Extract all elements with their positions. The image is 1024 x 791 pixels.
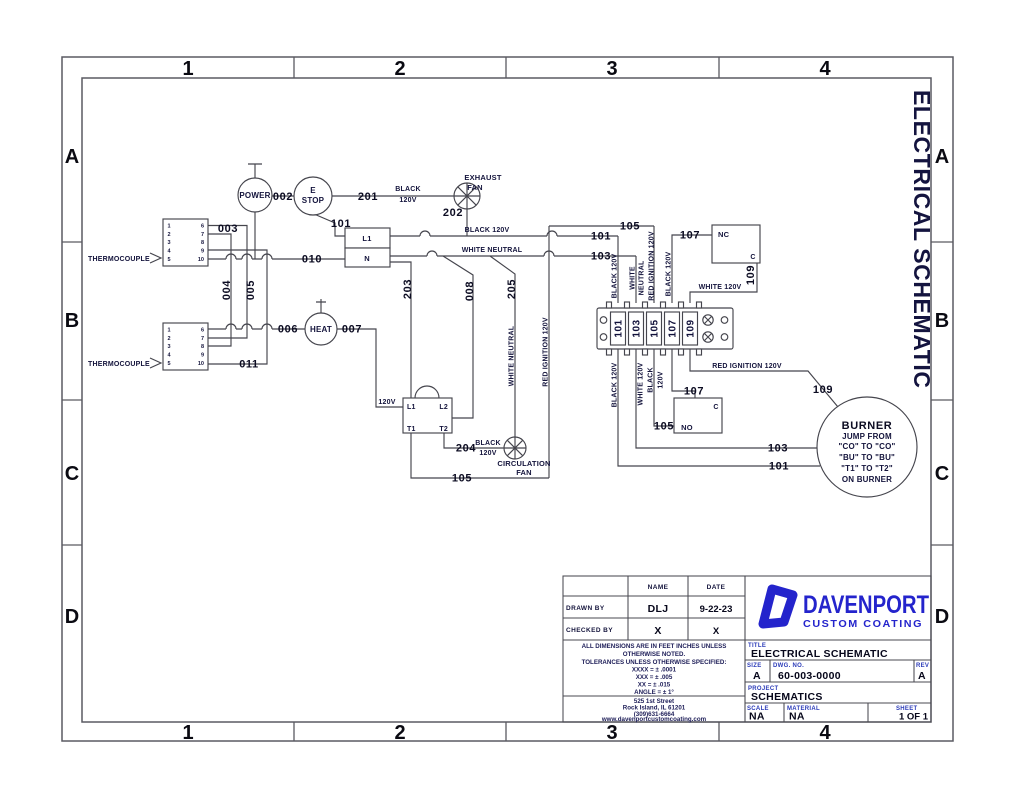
- terminal-105: 105: [650, 319, 661, 337]
- pin-number: 2: [168, 232, 171, 238]
- logo-mark-icon: [763, 589, 793, 624]
- rev-label: REV: [916, 663, 929, 669]
- wire-label-008: 008: [464, 281, 476, 301]
- no-contact-box: C NO: [674, 398, 722, 433]
- drawn-by-name: DLJ: [648, 603, 669, 615]
- circulation-fan-label: FAN: [516, 468, 532, 477]
- phase-label: BLACK 120V: [666, 251, 673, 296]
- phase-label: WHITE: [630, 266, 637, 290]
- wire-black-120v-run: [390, 231, 618, 303]
- zone-row-label: B: [65, 310, 79, 332]
- tolerance-note: XXX = ± .005: [636, 674, 673, 681]
- zone-row-label: B: [935, 310, 949, 332]
- burner: BURNER JUMP FROM "CO" TO "CO" "BU" TO "B…: [817, 397, 917, 497]
- wire-label-103: 103: [591, 251, 611, 263]
- heat-indicator: HEAT: [305, 299, 337, 345]
- zone-col-label: 4: [819, 58, 831, 80]
- tolerance-note: ANGLE = ± 1°: [634, 689, 674, 696]
- zone-row-label: D: [935, 606, 949, 628]
- drawing-frame: [62, 57, 953, 741]
- transformer-120v-label: 120V: [378, 399, 395, 406]
- phase-label: WHITE NEUTRAL: [509, 325, 516, 386]
- thermocouple-label: THERMOCOUPLE: [88, 256, 150, 263]
- pin-number: 6: [201, 328, 204, 334]
- company-logo: DAVENPORT CUSTOM COATING: [763, 589, 929, 630]
- relay-l1-label: L1: [362, 234, 371, 243]
- wire-008: [443, 256, 473, 418]
- transformer: L1 L2 T1 T2 120V: [378, 386, 452, 433]
- pin-number: 9: [201, 249, 204, 255]
- wire-label-101: 101: [769, 461, 789, 473]
- wire-label-202: 202: [443, 207, 463, 219]
- burner-note: "CO" TO "CO": [839, 442, 896, 451]
- phase-label: WHITE 120V: [699, 284, 742, 291]
- size-label: SIZE: [747, 663, 762, 669]
- phase-label: 120V: [399, 197, 416, 204]
- drawn-by-label: DRAWN BY: [566, 605, 605, 612]
- wire-011: [208, 250, 267, 364]
- terminal-block: 101 103 105 107 109: [597, 302, 733, 355]
- phase-label: WHITE NEUTRAL: [462, 247, 523, 254]
- zone-col-label: 3: [606, 58, 617, 80]
- scale-value: NA: [749, 711, 765, 723]
- transformer-l2: L2: [439, 404, 448, 411]
- exhaust-fan-symbol: EXHAUST FAN: [454, 173, 502, 209]
- phase-label: BLACK: [395, 186, 421, 193]
- estop-label: STOP: [302, 196, 325, 205]
- title-block: NAME DATE DRAWN BY DLJ 9-22-23 CHECKED B…: [563, 576, 931, 723]
- schematic-sheet: 1 2 3 4 1 2 3 4 A B C D A B C D ELECTRIC…: [0, 0, 1024, 791]
- phase-label: BLACK 120V: [612, 253, 619, 298]
- zone-row-label: D: [65, 606, 79, 628]
- wire-label-109: 109: [813, 384, 833, 396]
- wire-label-105: 105: [620, 221, 640, 233]
- phase-label: NEUTRAL: [639, 260, 646, 295]
- zone-col-label: 1: [182, 58, 193, 80]
- pin-number: 7: [201, 336, 204, 342]
- wire-label-203: 203: [402, 279, 414, 299]
- drawing-title: ELECTRICAL SCHEMATIC: [751, 648, 888, 660]
- control-relay-box: L1 N: [345, 228, 390, 267]
- zone-row-label: A: [935, 146, 949, 168]
- nc-label: NC: [718, 230, 730, 239]
- size-value: A: [753, 670, 761, 682]
- power-indicator: POWER: [238, 164, 272, 212]
- checked-by-name: X: [654, 625, 661, 637]
- wire-010: [208, 254, 345, 259]
- date-header: DATE: [707, 584, 726, 591]
- zone-col-label: 2: [394, 722, 405, 744]
- tolerance-note: TOLERANCES UNLESS OTHERWISE SPECIFIED:: [582, 659, 727, 666]
- material-value: NA: [789, 711, 805, 723]
- burner-note: ON BURNER: [842, 475, 892, 484]
- wire-label-105: 105: [452, 473, 472, 485]
- tolerance-note: XXXX = ± .0001: [632, 667, 677, 674]
- wire-label-007: 007: [342, 324, 362, 336]
- phase-label: WHITE 120V: [638, 362, 645, 405]
- phase-label: BLACK: [648, 367, 655, 393]
- wire-label-004: 004: [221, 280, 233, 300]
- zone-col-label: 4: [819, 722, 831, 744]
- checked-by-label: CHECKED BY: [566, 627, 613, 634]
- phase-label: RED IGNITION 120V: [712, 363, 782, 370]
- phase-label: BLACK 120V: [612, 362, 619, 407]
- pin-number: 8: [201, 240, 204, 246]
- thermocouple-block-2: 1 2 3 4 5 6 7 8 9 10 THERMOCOUPLE: [88, 323, 208, 370]
- burner-note: "BU" TO "BU": [839, 453, 895, 462]
- phase-label: 120V: [658, 371, 665, 388]
- transformer-l1: L1: [407, 404, 416, 411]
- drawn-by-date: 9-22-23: [700, 604, 733, 615]
- zone-col-label: 2: [394, 58, 405, 80]
- terminal-109: 109: [686, 319, 697, 337]
- exhaust-fan-label: FAN: [467, 183, 483, 192]
- transformer-t2: T2: [439, 426, 448, 433]
- zone-col-label: 3: [606, 722, 617, 744]
- wire-007: [337, 329, 403, 407]
- wire-label-003: 003: [218, 223, 238, 235]
- company-website: www.davenportcustomcoating.com: [601, 716, 707, 723]
- tolerance-note: ALL DIMENSIONS ARE IN FEET INCHES UNLESS: [582, 643, 727, 650]
- burner-note: "T1" TO "T2": [841, 464, 893, 473]
- pin-number: 6: [201, 224, 204, 230]
- wire-label-205: 205: [506, 279, 518, 299]
- brand-name: DAVENPORT: [803, 591, 929, 619]
- zone-row-label: C: [935, 463, 949, 485]
- zone-row-label: A: [65, 146, 79, 168]
- phase-label: BLACK: [475, 440, 501, 447]
- pin-number: 9: [201, 353, 204, 359]
- tolerance-note: XX = ± .015: [638, 682, 671, 689]
- burner-note: JUMP FROM: [842, 432, 892, 441]
- wire-label-101: 101: [331, 218, 351, 230]
- wire-label-103: 103: [768, 443, 788, 455]
- burner-title: BURNER: [842, 420, 893, 432]
- dwg-no-value: 60-003-0000: [778, 670, 841, 682]
- project-value: SCHEMATICS: [751, 691, 823, 703]
- zone-col-label: 1: [182, 722, 193, 744]
- wire-label-006: 006: [278, 324, 298, 336]
- terminal-103: 103: [632, 319, 643, 337]
- name-header: NAME: [648, 584, 669, 591]
- pin-number: 8: [201, 344, 204, 350]
- exhaust-fan-label: EXHAUST: [464, 173, 501, 182]
- pin-number: 7: [201, 232, 204, 238]
- wire-label-201: 201: [358, 191, 378, 203]
- pin-number: 10: [198, 257, 204, 263]
- circulation-fan-symbol: CIRCULATION FAN: [497, 437, 550, 477]
- wire-label-107: 107: [684, 386, 704, 398]
- wire-label-005: 005: [245, 280, 257, 300]
- thermocouple-block-1: 1 2 3 4 5 6 7 8 9 10 THERMOCOUPLE: [88, 219, 208, 266]
- phase-label: RED IGNITION 120V: [649, 231, 656, 301]
- transformer-t1: T1: [407, 426, 416, 433]
- estop-label: E: [310, 186, 316, 195]
- c-label: C: [750, 254, 755, 261]
- tolerance-note: OTHERWISE NOTED.: [623, 651, 686, 658]
- checked-by-date: X: [713, 626, 720, 637]
- terminal-107: 107: [668, 319, 679, 337]
- zone-labels: 1 2 3 4 1 2 3 4 A B C D A B C D: [65, 58, 949, 744]
- brand-tagline: CUSTOM COATING: [803, 618, 923, 630]
- estop-button: E STOP: [294, 177, 332, 215]
- pin-number: 2: [168, 336, 171, 342]
- pin-number: 3: [168, 344, 171, 350]
- c-label: C: [713, 404, 718, 411]
- nc-contact-box: NC C: [712, 225, 760, 263]
- pin-number: 10: [198, 361, 204, 367]
- power-label: POWER: [239, 191, 270, 200]
- sheet-side-title: ELECTRICAL SCHEMATIC: [909, 90, 935, 390]
- sheet-value: 1 OF 1: [899, 712, 929, 723]
- pin-number: 1: [168, 328, 171, 334]
- circulation-fan-label: CIRCULATION: [497, 459, 550, 468]
- terminal-101: 101: [614, 319, 625, 337]
- no-label: NO: [681, 423, 693, 432]
- dwg-no-label: DWG. NO.: [773, 663, 804, 669]
- pin-number: 5: [168, 257, 171, 263]
- wire-label-002: 002: [273, 191, 293, 203]
- wire-label-107: 107: [680, 230, 700, 242]
- wire-label-109: 109: [745, 265, 757, 285]
- wire-label-010: 010: [302, 254, 322, 266]
- phase-label: 120V: [479, 450, 496, 457]
- wire-107-top: [672, 235, 712, 303]
- wire-label-204: 204: [456, 443, 476, 455]
- rev-value: A: [918, 670, 926, 682]
- wire-label-101: 101: [591, 231, 611, 243]
- zone-row-label: C: [65, 463, 79, 485]
- pin-number: 3: [168, 240, 171, 246]
- relay-n-label: N: [364, 254, 370, 263]
- phase-label: BLACK 120V: [465, 227, 510, 234]
- thermocouple-label: THERMOCOUPLE: [88, 361, 150, 368]
- pin-number: 5: [168, 361, 171, 367]
- heat-label: HEAT: [310, 325, 332, 334]
- wire-label-011: 011: [239, 359, 259, 371]
- phase-label: RED IGNITION 120V: [543, 317, 550, 387]
- wire-label-105: 105: [654, 421, 674, 433]
- pin-number: 1: [168, 224, 171, 230]
